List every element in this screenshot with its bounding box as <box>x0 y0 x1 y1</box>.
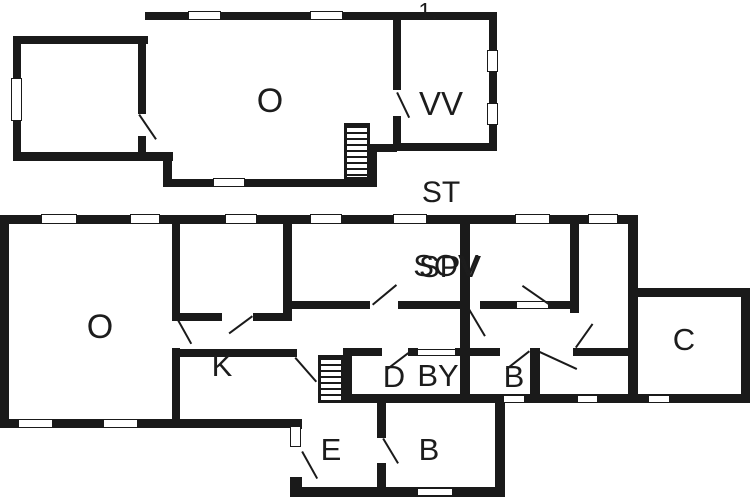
door-swing <box>468 309 486 337</box>
wall <box>398 301 462 309</box>
window <box>487 50 498 72</box>
room-label-c: C <box>664 324 704 355</box>
wall <box>292 301 370 309</box>
window <box>290 426 301 447</box>
room-label-spv: SPV <box>412 251 488 282</box>
window <box>577 395 598 403</box>
floor-number-label: 1. <box>408 0 448 23</box>
stairs-upper-floor <box>344 123 370 180</box>
wall <box>13 36 148 44</box>
door-swing <box>539 351 577 370</box>
wall <box>393 143 497 151</box>
room-label-b-low: B <box>409 434 449 465</box>
window <box>515 214 550 224</box>
wall <box>172 224 180 315</box>
window <box>393 214 427 224</box>
window <box>310 214 342 224</box>
wall <box>638 288 750 297</box>
wall <box>0 215 9 428</box>
wall <box>741 288 750 403</box>
room-label-o-floor1: O <box>240 84 300 118</box>
window <box>487 103 498 125</box>
wall <box>408 348 418 356</box>
window <box>310 11 343 20</box>
wall <box>573 348 638 356</box>
window <box>41 214 77 224</box>
window <box>417 488 453 496</box>
wall <box>489 12 497 151</box>
room-label-vv: VV <box>411 87 471 120</box>
window <box>503 395 525 403</box>
door-opening <box>418 349 455 356</box>
window <box>18 419 53 428</box>
window <box>225 214 257 224</box>
wall <box>480 301 518 309</box>
wall <box>172 348 180 422</box>
door-swing <box>176 318 192 344</box>
door-swing <box>396 92 410 118</box>
wall <box>570 224 579 313</box>
section-label-st: ST <box>416 178 466 208</box>
room-label-b-mid: B <box>494 361 534 392</box>
window <box>213 178 245 187</box>
wall <box>377 463 386 491</box>
wall <box>13 152 173 161</box>
wall <box>455 348 500 356</box>
door-swing <box>372 284 397 305</box>
wall <box>393 20 401 90</box>
wall <box>283 224 292 321</box>
room-label-by: BY <box>413 360 463 391</box>
window <box>588 214 618 224</box>
wall <box>138 136 146 152</box>
wall <box>138 44 146 114</box>
window <box>188 11 221 20</box>
wall <box>628 215 638 397</box>
window <box>11 78 22 121</box>
stairs-ground-floor <box>318 355 344 403</box>
wall <box>290 487 505 497</box>
wall <box>163 179 375 187</box>
window <box>103 419 138 428</box>
door-swing <box>228 315 253 334</box>
room-label-e: E <box>311 434 351 465</box>
wall <box>546 301 572 309</box>
room-label-d: D <box>374 361 414 392</box>
door-swing <box>382 438 399 464</box>
wall <box>495 403 505 497</box>
window <box>648 395 670 403</box>
room-label-k: K <box>197 350 247 381</box>
room-label-o-ground: O <box>70 310 130 344</box>
wall <box>253 313 285 321</box>
floorplan-canvas: 1. O VV ST <box>0 0 750 500</box>
wall <box>377 398 386 438</box>
door-swing <box>575 323 593 348</box>
window <box>130 214 160 224</box>
door-swing <box>294 357 317 382</box>
